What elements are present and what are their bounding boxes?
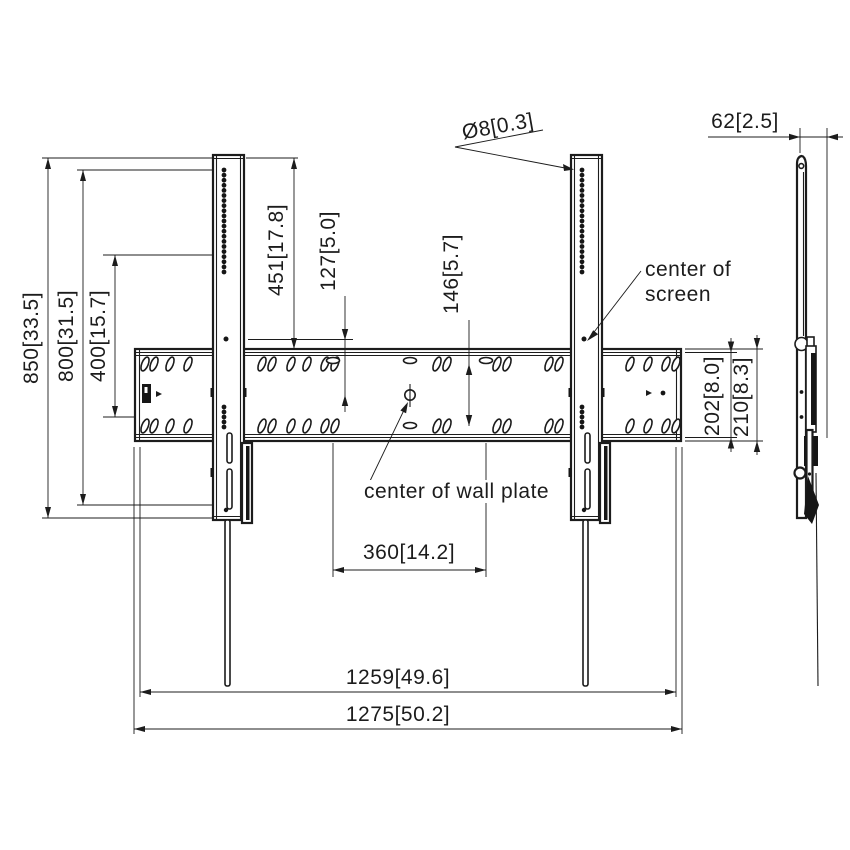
dim-127: 127[5.0]	[317, 211, 340, 291]
rail-hole	[580, 208, 585, 213]
rail-hole	[580, 188, 585, 193]
dim-850: 850[33.5]	[20, 292, 43, 384]
rail-hole	[580, 193, 585, 198]
rail-strap	[225, 520, 230, 686]
rail-body	[571, 155, 602, 520]
rail-hole	[222, 410, 227, 415]
dim-1275: 1275[50.2]	[346, 703, 450, 726]
rail-hole	[580, 173, 585, 178]
rail-hole	[580, 244, 585, 249]
plate-pin-hole	[661, 391, 666, 396]
rail-hole	[580, 425, 585, 430]
center-of-screen-label-1: center of	[645, 258, 731, 281]
dim-400: 400[15.7]	[87, 290, 110, 382]
rail-body	[213, 155, 244, 520]
rail-hole	[222, 234, 227, 239]
rail-hole	[580, 265, 585, 270]
rail-strap	[583, 520, 588, 686]
dim-62: 62[2.5]	[711, 110, 779, 133]
center-of-wall-plate-label: center of wall plate	[364, 480, 549, 503]
center-of-screen-label-2: screen	[645, 283, 711, 306]
anchor-slot-right	[480, 358, 493, 364]
rail-hole	[222, 203, 227, 208]
rail-hole	[222, 249, 227, 254]
rail-hole	[222, 193, 227, 198]
rail-hole	[580, 168, 585, 173]
anchor-slot-left	[327, 358, 340, 364]
rail-hole	[580, 198, 585, 203]
rail-hole	[580, 219, 585, 224]
technical-drawing-canvas: Ø8[0.3] center of screen center of wall …	[0, 0, 850, 850]
rail-hole	[580, 203, 585, 208]
rail-tab	[602, 388, 605, 397]
rail-hole	[222, 188, 227, 193]
rail-hole	[222, 425, 227, 430]
rail-hole	[222, 219, 227, 224]
rail-tab	[244, 388, 247, 397]
rail-tab	[569, 388, 572, 397]
rail-hole	[222, 254, 227, 259]
rail-hole	[580, 229, 585, 234]
rail-hole	[580, 234, 585, 239]
rail-hole	[222, 229, 227, 234]
rail-hole	[580, 259, 585, 264]
rail-tab	[569, 468, 572, 477]
anchor-slot-bottom	[404, 423, 417, 429]
side-view	[795, 156, 820, 686]
side-latch-pivot	[795, 468, 806, 479]
rail-hole	[222, 183, 227, 188]
rail-hole	[222, 244, 227, 249]
screen-center-hole	[224, 337, 229, 342]
dim-202: 202[8.0]	[701, 356, 724, 436]
callouts: Ø8[0.3] center of screen center of wall …	[362, 109, 731, 503]
drawing-svg: Ø8[0.3] center of screen center of wall …	[0, 0, 850, 850]
rail-tab	[211, 388, 214, 397]
dim-800: 800[31.5]	[55, 290, 78, 382]
rail-hole	[580, 178, 585, 183]
rail-hole	[580, 270, 585, 275]
rail-hole	[580, 249, 585, 254]
dim-360: 360[14.2]	[363, 541, 455, 564]
rail-hole	[222, 224, 227, 229]
rail-hole	[580, 415, 585, 420]
side-latch	[795, 430, 820, 686]
rail-hole	[222, 214, 227, 219]
anchor-slot-center	[404, 358, 417, 364]
dim-451: 451[17.8]	[265, 204, 288, 296]
rail-hole	[222, 405, 227, 410]
rail-hole	[580, 214, 585, 219]
rail-hole	[222, 178, 227, 183]
rail-hole	[222, 208, 227, 213]
rail-hole	[222, 259, 227, 264]
rail-hole	[580, 405, 585, 410]
rail-slot	[585, 433, 590, 463]
screen-center-hole	[582, 337, 587, 342]
rail-tab	[211, 468, 214, 477]
rail-hole	[222, 415, 227, 420]
rail-hole	[580, 410, 585, 415]
dim-210: 210[8.3]	[730, 357, 753, 437]
rail-hole	[580, 239, 585, 244]
rail-hole	[580, 420, 585, 425]
rail-hole	[222, 265, 227, 270]
rail-hole	[222, 420, 227, 425]
side-rail-top-hole	[799, 164, 804, 169]
rail-slot	[227, 469, 232, 509]
rail-slot	[585, 469, 590, 509]
dim-146: 146[5.7]	[440, 234, 463, 314]
product-label	[142, 384, 151, 403]
rail-hole	[580, 183, 585, 188]
rail-hole	[580, 224, 585, 229]
rail-slot	[227, 433, 232, 463]
rail-hole	[222, 173, 227, 178]
rail-hole	[222, 239, 227, 244]
dim-1259: 1259[49.6]	[346, 666, 450, 689]
rail-hole	[222, 168, 227, 173]
rail-hole	[580, 254, 585, 259]
rail-hole	[222, 198, 227, 203]
rail-hole	[222, 270, 227, 275]
